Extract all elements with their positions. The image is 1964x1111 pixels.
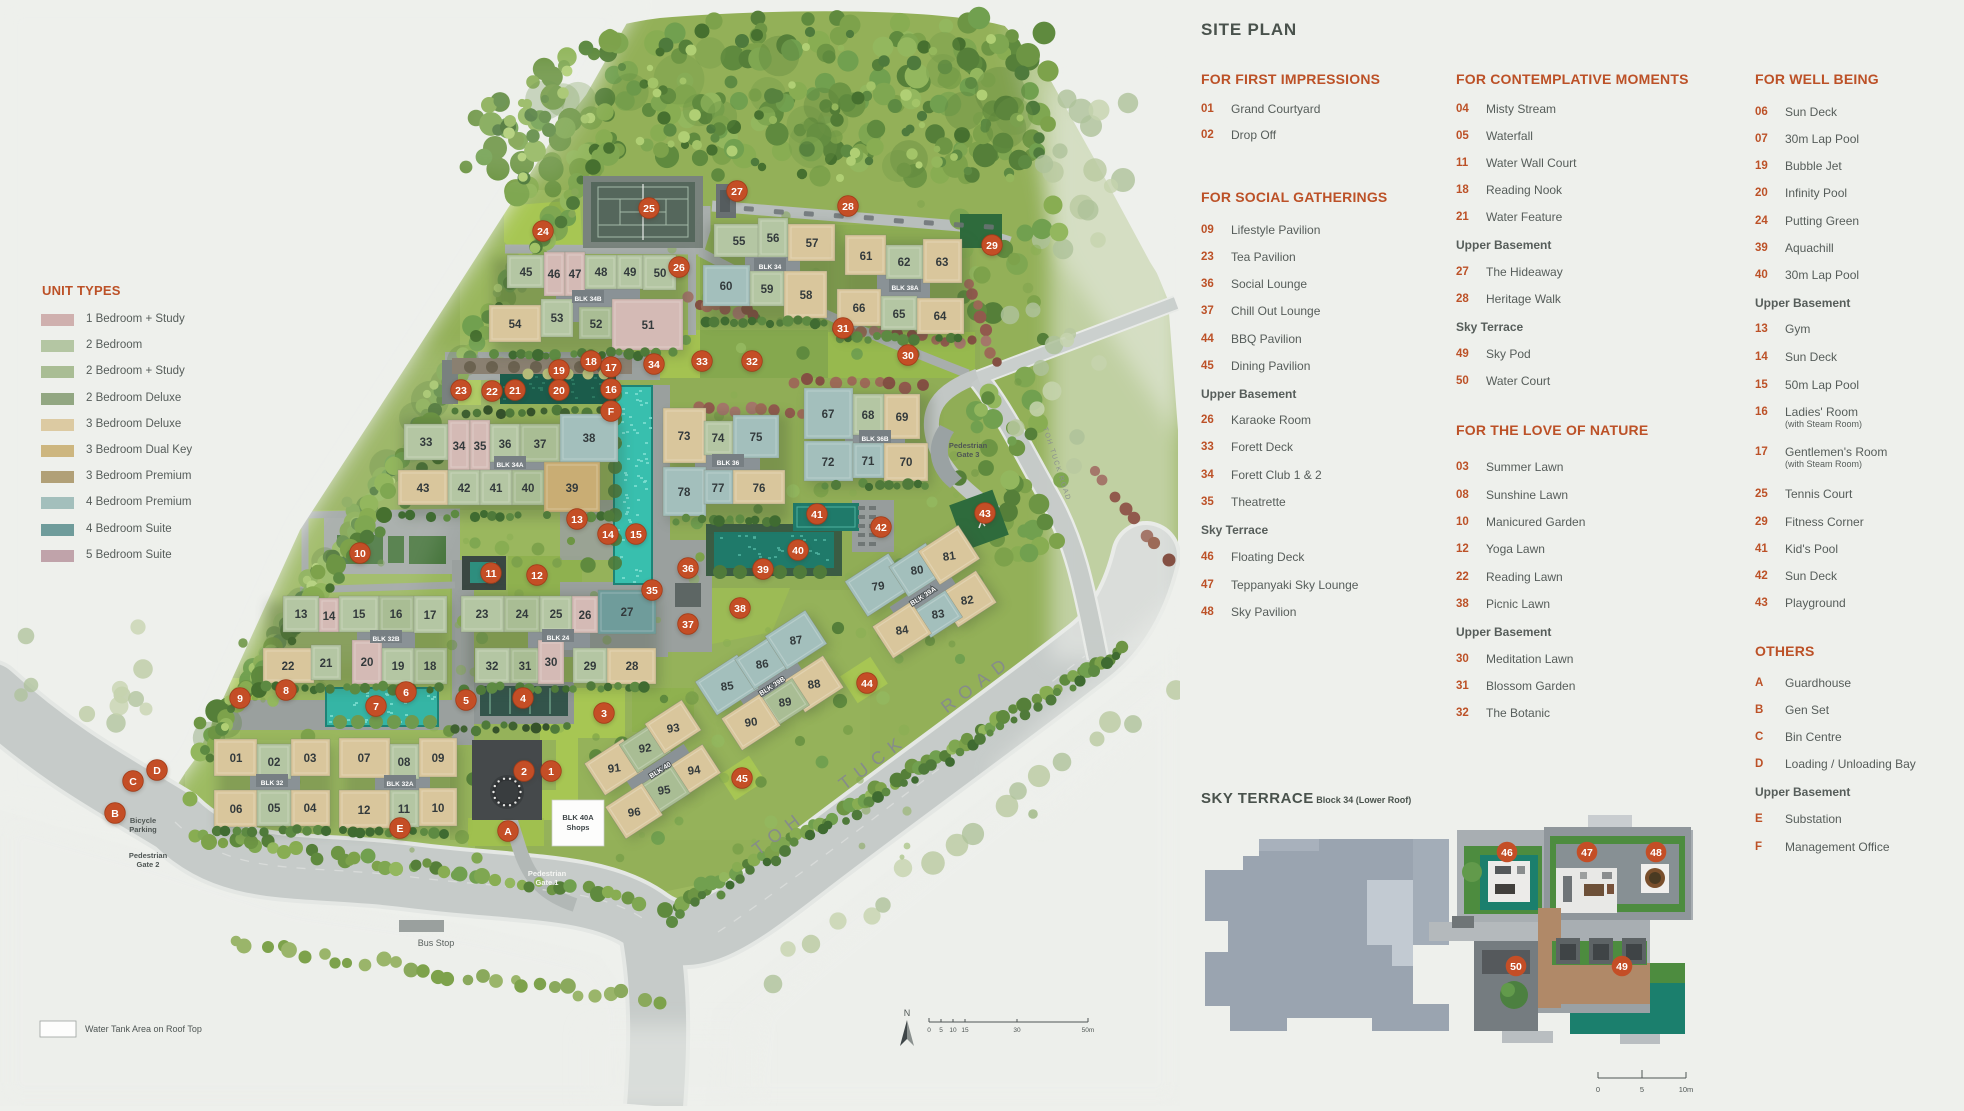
svg-text:10: 10 xyxy=(949,1027,957,1034)
svg-text:39: 39 xyxy=(757,564,769,576)
svg-text:84: 84 xyxy=(895,624,910,638)
svg-text:68: 68 xyxy=(862,410,875,422)
svg-text:26: 26 xyxy=(673,262,685,274)
svg-text:24: 24 xyxy=(537,226,549,238)
svg-text:67: 67 xyxy=(822,409,835,421)
svg-text:60: 60 xyxy=(720,281,733,293)
svg-text:37: 37 xyxy=(682,619,694,631)
svg-text:96: 96 xyxy=(627,806,641,820)
svg-text:14: 14 xyxy=(602,529,614,541)
svg-text:35: 35 xyxy=(646,585,658,597)
svg-text:BLK 38A: BLK 38A xyxy=(891,285,918,292)
svg-text:BLK 36: BLK 36 xyxy=(717,460,740,467)
svg-text:77: 77 xyxy=(712,483,725,495)
svg-text:20: 20 xyxy=(553,385,565,397)
svg-text:21: 21 xyxy=(509,385,521,397)
svg-text:71: 71 xyxy=(862,456,875,468)
svg-text:5: 5 xyxy=(463,695,469,707)
svg-text:48: 48 xyxy=(595,267,608,279)
svg-text:38: 38 xyxy=(734,603,746,615)
svg-text:Water Tank Area on Roof Top: Water Tank Area on Roof Top xyxy=(85,1024,202,1034)
svg-text:59: 59 xyxy=(761,284,774,296)
svg-text:F: F xyxy=(608,406,615,418)
svg-text:36: 36 xyxy=(499,439,512,451)
svg-text:91: 91 xyxy=(607,762,622,776)
svg-text:34: 34 xyxy=(453,441,466,453)
svg-text:BLK 34A: BLK 34A xyxy=(496,462,523,469)
svg-text:64: 64 xyxy=(934,311,947,323)
svg-text:52: 52 xyxy=(590,319,603,331)
svg-text:32: 32 xyxy=(486,661,499,673)
svg-text:47: 47 xyxy=(569,269,582,281)
svg-text:63: 63 xyxy=(936,257,949,269)
svg-text:15: 15 xyxy=(961,1027,969,1034)
svg-text:21: 21 xyxy=(320,658,333,670)
svg-text:49: 49 xyxy=(624,267,637,279)
svg-text:30: 30 xyxy=(1013,1027,1021,1034)
svg-text:16: 16 xyxy=(390,609,403,621)
svg-text:D: D xyxy=(153,765,161,777)
svg-text:24: 24 xyxy=(516,609,529,621)
svg-text:83: 83 xyxy=(931,608,945,622)
svg-text:Pedestrian: Pedestrian xyxy=(129,851,168,860)
svg-text:4: 4 xyxy=(520,693,526,705)
svg-text:19: 19 xyxy=(553,365,565,377)
svg-text:95: 95 xyxy=(657,784,672,798)
svg-text:1: 1 xyxy=(548,766,554,778)
svg-text:79: 79 xyxy=(871,580,885,594)
svg-text:33: 33 xyxy=(420,437,433,449)
svg-text:29: 29 xyxy=(986,240,998,252)
svg-text:33: 33 xyxy=(696,356,708,368)
svg-text:Gate 2: Gate 2 xyxy=(137,860,160,869)
svg-text:66: 66 xyxy=(853,303,866,315)
svg-text:23: 23 xyxy=(455,385,467,397)
svg-text:08: 08 xyxy=(398,757,411,769)
svg-text:93: 93 xyxy=(666,722,680,736)
svg-text:48: 48 xyxy=(1650,847,1662,859)
svg-text:19: 19 xyxy=(392,661,405,673)
svg-text:78: 78 xyxy=(678,487,691,499)
svg-text:Pedestrian: Pedestrian xyxy=(528,869,567,878)
svg-text:75: 75 xyxy=(750,432,763,444)
svg-text:86: 86 xyxy=(755,658,769,672)
svg-text:12: 12 xyxy=(358,805,371,817)
svg-text:92: 92 xyxy=(638,742,652,756)
svg-text:57: 57 xyxy=(806,238,819,250)
svg-text:43: 43 xyxy=(417,483,430,495)
svg-text:Shops: Shops xyxy=(567,823,590,832)
svg-text:46: 46 xyxy=(1501,847,1513,859)
svg-text:Bicycle: Bicycle xyxy=(130,816,156,825)
svg-text:72: 72 xyxy=(822,457,835,469)
svg-text:Gate 3: Gate 3 xyxy=(957,450,980,459)
svg-text:18: 18 xyxy=(585,356,597,368)
svg-text:27: 27 xyxy=(621,607,634,619)
svg-text:8: 8 xyxy=(283,685,289,697)
svg-text:14: 14 xyxy=(323,611,336,623)
svg-text:89: 89 xyxy=(778,696,792,710)
svg-text:3: 3 xyxy=(601,708,607,720)
svg-text:11: 11 xyxy=(485,568,496,580)
svg-text:0: 0 xyxy=(927,1027,931,1034)
svg-text:N: N xyxy=(904,1008,911,1018)
svg-text:27: 27 xyxy=(731,186,743,198)
svg-text:Bus Stop: Bus Stop xyxy=(418,938,455,948)
svg-text:50m: 50m xyxy=(1082,1027,1095,1034)
svg-text:25: 25 xyxy=(643,203,655,215)
svg-text:A: A xyxy=(504,826,512,838)
svg-text:BLK 34B: BLK 34B xyxy=(574,296,601,303)
svg-text:2: 2 xyxy=(521,766,527,778)
svg-text:20: 20 xyxy=(361,657,374,669)
svg-text:65: 65 xyxy=(893,309,906,321)
svg-text:35: 35 xyxy=(474,441,487,453)
svg-text:BLK 32A: BLK 32A xyxy=(386,781,413,788)
svg-text:Gate 1: Gate 1 xyxy=(536,878,559,887)
svg-text:40: 40 xyxy=(522,483,535,495)
svg-text:5: 5 xyxy=(1640,1085,1644,1094)
svg-text:82: 82 xyxy=(960,594,974,608)
svg-text:31: 31 xyxy=(519,661,532,673)
svg-text:39: 39 xyxy=(566,483,579,495)
svg-text:62: 62 xyxy=(898,257,911,269)
svg-text:26: 26 xyxy=(579,610,592,622)
svg-text:22: 22 xyxy=(486,386,498,398)
svg-text:49: 49 xyxy=(1616,961,1628,973)
svg-text:22: 22 xyxy=(282,661,295,673)
svg-text:23: 23 xyxy=(476,609,489,621)
svg-text:36: 36 xyxy=(682,563,694,575)
svg-text:15: 15 xyxy=(630,529,642,541)
svg-text:80: 80 xyxy=(910,564,924,578)
svg-text:51: 51 xyxy=(642,320,655,332)
svg-text:17: 17 xyxy=(605,362,617,374)
svg-text:54: 54 xyxy=(509,319,522,331)
svg-text:B: B xyxy=(111,808,119,820)
svg-text:58: 58 xyxy=(800,290,813,302)
svg-text:45: 45 xyxy=(520,267,533,279)
svg-text:40: 40 xyxy=(792,545,804,557)
svg-text:90: 90 xyxy=(744,716,758,730)
svg-text:87: 87 xyxy=(789,634,803,648)
svg-text:E: E xyxy=(396,823,403,835)
svg-text:85: 85 xyxy=(720,680,735,694)
svg-text:76: 76 xyxy=(753,483,766,495)
svg-text:17: 17 xyxy=(424,610,437,622)
svg-text:01: 01 xyxy=(230,753,243,765)
svg-text:53: 53 xyxy=(551,313,564,325)
svg-text:5: 5 xyxy=(939,1027,943,1034)
svg-text:04: 04 xyxy=(304,803,317,815)
svg-text:BLK 24: BLK 24 xyxy=(547,635,570,642)
svg-text:10: 10 xyxy=(432,803,445,815)
svg-text:56: 56 xyxy=(767,233,780,245)
svg-text:47: 47 xyxy=(1581,847,1593,859)
svg-text:09: 09 xyxy=(432,753,445,765)
svg-text:30: 30 xyxy=(902,350,914,362)
svg-text:43: 43 xyxy=(979,508,991,520)
svg-text:88: 88 xyxy=(807,678,822,692)
svg-text:70: 70 xyxy=(900,457,913,469)
svg-text:BLK 32B: BLK 32B xyxy=(372,636,399,643)
svg-text:28: 28 xyxy=(626,661,639,673)
svg-text:10: 10 xyxy=(354,548,366,560)
svg-text:25: 25 xyxy=(550,609,563,621)
svg-text:28: 28 xyxy=(842,201,854,213)
svg-text:30: 30 xyxy=(545,657,558,669)
svg-text:38: 38 xyxy=(583,433,596,445)
svg-text:BLK 40A: BLK 40A xyxy=(562,813,594,822)
svg-text:10m: 10m xyxy=(1679,1085,1694,1094)
svg-text:13: 13 xyxy=(295,609,308,621)
svg-text:Pedestrian: Pedestrian xyxy=(949,441,988,450)
svg-text:15: 15 xyxy=(353,609,366,621)
svg-text:7: 7 xyxy=(373,701,379,713)
svg-text:41: 41 xyxy=(490,483,503,495)
svg-text:02: 02 xyxy=(268,757,281,769)
svg-text:34: 34 xyxy=(648,359,660,371)
svg-text:BLK 34: BLK 34 xyxy=(759,264,782,271)
svg-text:6: 6 xyxy=(403,687,409,699)
svg-text:50: 50 xyxy=(1510,961,1522,973)
svg-text:11: 11 xyxy=(398,804,411,816)
svg-text:81: 81 xyxy=(942,550,957,564)
svg-text:50: 50 xyxy=(654,268,667,280)
svg-text:74: 74 xyxy=(712,433,725,445)
svg-text:C: C xyxy=(129,776,137,788)
svg-text:61: 61 xyxy=(860,251,873,263)
svg-text:55: 55 xyxy=(733,236,746,248)
svg-text:45: 45 xyxy=(736,773,748,785)
svg-text:BLK 36B: BLK 36B xyxy=(861,436,888,443)
svg-text:42: 42 xyxy=(875,522,887,534)
svg-text:41: 41 xyxy=(811,509,823,521)
svg-text:37: 37 xyxy=(534,439,547,451)
svg-text:BLK 32: BLK 32 xyxy=(261,780,284,787)
svg-text:9: 9 xyxy=(237,693,243,705)
svg-text:07: 07 xyxy=(358,753,371,765)
svg-text:05: 05 xyxy=(268,803,281,815)
svg-text:31: 31 xyxy=(837,323,849,335)
svg-text:32: 32 xyxy=(746,356,758,368)
svg-text:94: 94 xyxy=(687,764,702,778)
svg-text:42: 42 xyxy=(458,483,471,495)
svg-text:03: 03 xyxy=(304,753,317,765)
svg-text:44: 44 xyxy=(861,678,873,690)
svg-text:06: 06 xyxy=(230,804,243,816)
svg-text:12: 12 xyxy=(531,570,543,582)
svg-text:16: 16 xyxy=(605,384,617,396)
svg-text:29: 29 xyxy=(584,661,597,673)
svg-text:0: 0 xyxy=(1596,1085,1600,1094)
svg-text:73: 73 xyxy=(678,431,691,443)
svg-text:Parking: Parking xyxy=(129,825,157,834)
svg-text:13: 13 xyxy=(571,514,583,526)
svg-text:18: 18 xyxy=(424,661,437,673)
svg-text:69: 69 xyxy=(896,412,909,424)
svg-text:46: 46 xyxy=(548,269,561,281)
